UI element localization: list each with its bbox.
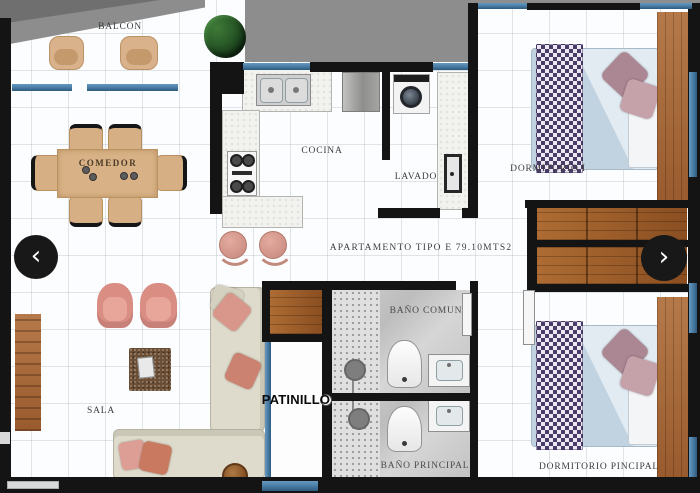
wardrobe-divider <box>636 247 638 284</box>
wall-left-notch <box>0 432 10 444</box>
sink-basin <box>436 406 463 426</box>
wall-patinillo-right <box>322 281 332 477</box>
stove-burner <box>242 154 255 167</box>
wall-woodnook-bottom <box>262 334 332 342</box>
laundry-door-knob <box>450 172 454 176</box>
laundry-window <box>433 63 468 70</box>
potted-plant <box>204 15 246 58</box>
chevron-right-icon: › <box>659 244 669 270</box>
lightwell-glass-bottom <box>262 481 318 491</box>
kitchen-window <box>243 63 310 70</box>
bedroom1-throw-blanket <box>536 44 583 173</box>
wall-bathroom-top <box>262 281 456 290</box>
washing-machine <box>393 74 430 114</box>
wall-bedroom1-bottom <box>525 200 690 208</box>
armchair <box>97 283 133 328</box>
wall-left <box>0 18 11 477</box>
balcony-slider-glass-1 <box>12 84 72 91</box>
chevron-left-icon: ‹ <box>31 243 41 269</box>
bedroom1-window-top-1 <box>478 3 527 9</box>
toilet-flush <box>402 377 407 382</box>
main-bathroom-toilet <box>387 406 422 452</box>
sink-drain <box>268 87 274 93</box>
bedroom1-window-top-2 <box>640 3 692 9</box>
exterior-area-top-center <box>245 0 470 62</box>
sink-faucet <box>447 409 451 413</box>
dining-table: COMEDOR <box>57 149 158 198</box>
main-bedroom-door <box>523 290 535 345</box>
lightwell-floor <box>271 342 322 477</box>
wardrobe-divider <box>586 247 588 284</box>
dining-chair <box>108 195 142 227</box>
sink-basin <box>436 360 463 381</box>
sofa-pillow <box>138 440 173 475</box>
room-label-lightwell: PATINILLO <box>262 392 330 407</box>
stove-knobs <box>232 171 252 175</box>
main-bathroom-sink <box>428 400 470 432</box>
armchair <box>140 283 177 328</box>
wall-patinillo-left <box>262 281 270 342</box>
room-label-bedroom1: DORMITORIO I <box>510 164 586 174</box>
bedroom1-window-right <box>689 72 697 177</box>
sink-faucet <box>447 363 451 367</box>
apartment-title: APARTAMENTO TIPO E 79.10MTS2 <box>330 243 513 253</box>
balcony-chair <box>49 36 84 70</box>
magazine <box>137 356 155 379</box>
wall-bottom <box>0 477 700 493</box>
bedroom1-headboard-panel <box>657 12 688 203</box>
washer-door <box>400 86 422 108</box>
balcony-chair <box>120 36 158 70</box>
dining-chair <box>69 195 103 227</box>
room-label-laundry: LAVADO <box>395 172 437 182</box>
prev-button[interactable]: ‹ <box>14 235 58 279</box>
room-label-kitchen: COCINA <box>301 146 342 156</box>
entry-wood-nook <box>270 286 322 334</box>
living-console <box>15 314 41 431</box>
wardrobe-divider <box>586 207 588 240</box>
wall-cocina-lavado <box>382 62 390 160</box>
room-label-living: SALA <box>87 406 115 416</box>
room-label-main-bathroom: BAÑO PRINCIPAL <box>381 461 470 471</box>
floorplan-image: COMEDOR <box>0 0 700 493</box>
wall-closet-bottom <box>527 284 690 292</box>
shared-bathroom-door <box>462 293 472 336</box>
table-setting <box>120 172 128 180</box>
lightwell-glass-left <box>265 342 271 477</box>
closet-window-right <box>689 283 697 333</box>
shared-bathroom-sink <box>428 354 470 387</box>
room-label-balcony: BALCON <box>98 22 142 32</box>
sink-basin <box>285 78 308 103</box>
wall-bathroom-divider <box>332 393 478 401</box>
bottom-sill-bar <box>7 481 59 489</box>
wall-closet-left <box>527 200 537 292</box>
wall-lavado-bottom-2 <box>462 208 468 218</box>
laundry-door <box>444 154 462 193</box>
sink-drain <box>293 87 299 93</box>
stove-burner <box>242 180 255 193</box>
room-label-shared-bathroom: BAÑO COMUN <box>390 306 463 316</box>
bar-stool <box>219 231 247 259</box>
balcony-chair-seat <box>54 49 78 65</box>
toilet-flush <box>402 441 407 446</box>
main-bedroom-throw-blanket <box>536 321 583 450</box>
shower-drain <box>348 408 370 430</box>
balcony-chair-seat <box>126 49 152 65</box>
table-setting <box>89 173 97 181</box>
wall-lavado-bottom <box>378 208 440 218</box>
area-rug <box>129 348 171 391</box>
kitchen-double-sink <box>256 74 311 106</box>
kitchen-bar-counter <box>222 196 303 228</box>
wall-lavado-right <box>468 3 478 218</box>
main-bedroom-window-right <box>689 437 697 477</box>
table-setting <box>82 166 90 174</box>
main-bedroom-headboard-panel <box>657 297 688 477</box>
shower-drain <box>344 359 366 381</box>
washer-control-panel <box>394 75 429 82</box>
dining-chair <box>155 155 187 191</box>
armchair-seat <box>103 297 127 321</box>
balcony-slider-glass-2 <box>87 84 178 91</box>
shared-bathroom-toilet <box>387 340 422 388</box>
sink-basin <box>260 78 283 103</box>
stove <box>227 151 257 196</box>
bar-stool <box>259 231 287 259</box>
wall-kitchen-left <box>210 62 222 214</box>
refrigerator <box>342 72 380 112</box>
wall-bedroom1-top <box>527 3 640 10</box>
armchair-seat <box>146 297 171 321</box>
wardrobe-divider <box>636 207 638 240</box>
room-label-main-bedroom: DORMITORIO PINCIPAL <box>539 462 659 472</box>
wall-top-kitchen <box>310 62 433 72</box>
next-button[interactable]: › <box>641 235 687 281</box>
table-setting <box>130 172 138 180</box>
